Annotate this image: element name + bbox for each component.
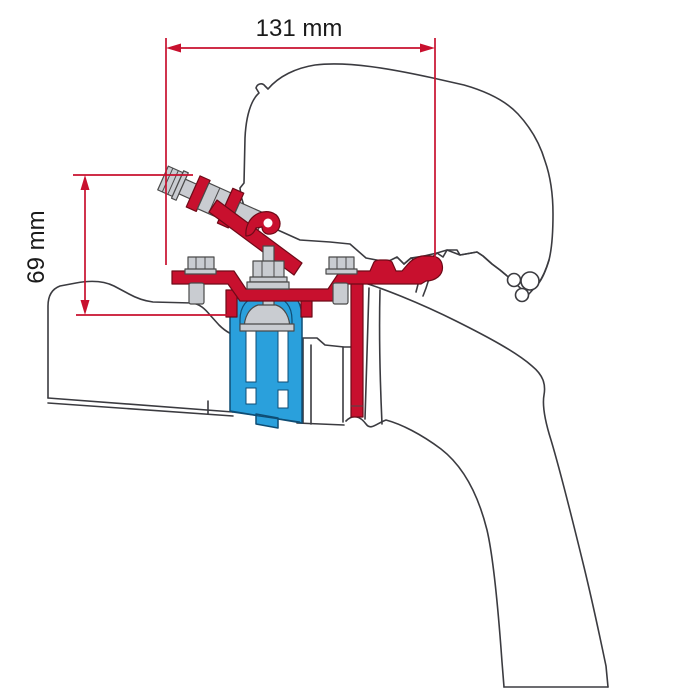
- height-arrow-bottom: [81, 300, 90, 315]
- blue-slot-lower-right: [278, 390, 288, 408]
- vehicle-roof-profile: [48, 262, 608, 687]
- blue-slot-lower-left: [246, 388, 256, 404]
- wall-inner-line-1: [365, 288, 369, 419]
- left-bolt-washer: [185, 269, 216, 274]
- pillar-left-edge: [346, 417, 504, 687]
- rail-bead-small-1: [508, 274, 521, 287]
- roof-bottom-edge-3: [297, 423, 344, 425]
- dome-base-washer: [240, 324, 294, 331]
- right-bolt-head: [329, 257, 354, 270]
- diagram-canvas: 131 mm 69 mm: [0, 0, 700, 700]
- width-arrow-right: [420, 44, 435, 53]
- red-vertical-strap: [351, 283, 363, 417]
- height-dimension-label: 69 mm: [23, 210, 50, 283]
- adapter-diagram: 131 mm 69 mm: [0, 0, 700, 700]
- center-nut-flange: [250, 277, 287, 282]
- blue-slot-upper-left: [246, 328, 256, 382]
- width-dimension-label: 131 mm: [256, 15, 343, 42]
- claw-notch: [264, 219, 273, 228]
- left-bolt-head: [188, 257, 214, 270]
- width-arrow-left: [166, 44, 181, 53]
- wall-inner-line-2: [380, 290, 382, 424]
- right-bolt-washer: [326, 269, 357, 274]
- right-bolt-shaft: [333, 283, 348, 304]
- left-bolt-shaft: [189, 283, 204, 304]
- center-nut: [253, 261, 284, 278]
- height-arrow-top: [81, 175, 90, 190]
- center-washer: [247, 282, 289, 289]
- rail-bead-large: [521, 272, 539, 290]
- outer-skin-curve: [358, 281, 608, 687]
- rail-bead-small-2: [516, 289, 529, 302]
- center-stud-upper: [263, 246, 274, 262]
- blue-slot-upper-right: [278, 328, 288, 382]
